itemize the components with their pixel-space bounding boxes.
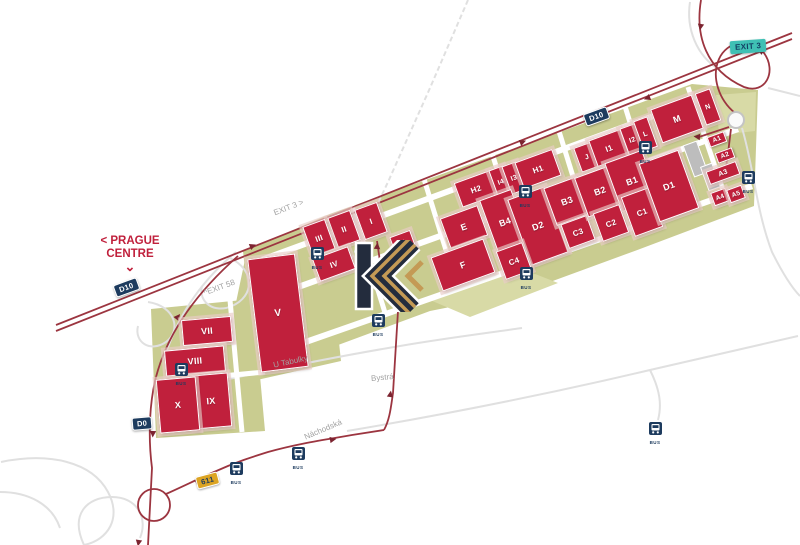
bus-stop: BUS bbox=[311, 247, 324, 270]
bus-stop-label: BUS bbox=[519, 203, 532, 208]
bus-stop: BUS bbox=[292, 447, 305, 470]
bus-stop: BUS bbox=[372, 314, 385, 337]
brand-logo bbox=[352, 240, 430, 312]
bus-icon bbox=[175, 363, 188, 376]
bus-icon bbox=[649, 422, 662, 435]
direction-sign-prague-centre: < PRAGUE CENTRE ⌄ bbox=[82, 235, 178, 272]
bus-stop-label: BUS bbox=[311, 265, 324, 270]
bus-icon bbox=[742, 171, 755, 184]
bus-stop: BUS bbox=[742, 171, 755, 194]
bus-stop: BUS bbox=[519, 185, 532, 208]
direction-line1: < PRAGUE bbox=[82, 235, 178, 248]
bus-stop: BUS bbox=[649, 422, 662, 445]
building-vii: VII bbox=[181, 316, 233, 346]
bus-stop-label: BUS bbox=[649, 440, 662, 445]
bus-stop-label: BUS bbox=[292, 465, 305, 470]
building-viii: VIII bbox=[164, 345, 226, 376]
down-arrow-icon: ⌄ bbox=[82, 262, 178, 272]
bus-stop-label: BUS bbox=[520, 285, 533, 290]
bus-icon bbox=[519, 185, 532, 198]
exit-3-badge: EXIT 3 bbox=[730, 39, 767, 54]
bus-icon bbox=[230, 462, 243, 475]
k-monogram-icon bbox=[352, 240, 430, 312]
roundabout bbox=[728, 112, 744, 128]
bus-icon bbox=[372, 314, 385, 327]
bus-stop: BUS bbox=[175, 363, 188, 386]
bus-stop-label: BUS bbox=[175, 381, 188, 386]
bus-stop-label: BUS bbox=[230, 480, 243, 485]
bus-stop-label: BUS bbox=[742, 189, 755, 194]
bus-icon bbox=[311, 247, 324, 260]
site-plan-map: < PRAGUE CENTRE ⌄ EXIT 3 IIIIIIIVVVIIVII… bbox=[0, 0, 800, 545]
bus-stop: BUS bbox=[230, 462, 243, 485]
bus-icon bbox=[639, 141, 652, 154]
bus-icon bbox=[520, 267, 533, 280]
bus-icon bbox=[292, 447, 305, 460]
bus-stop-label: BUS bbox=[639, 159, 652, 164]
bus-stop: BUS bbox=[639, 141, 652, 164]
road-shield-d0: D0 bbox=[131, 416, 152, 431]
bus-stop-label: BUS bbox=[372, 332, 385, 337]
bus-stop: BUS bbox=[520, 267, 533, 290]
